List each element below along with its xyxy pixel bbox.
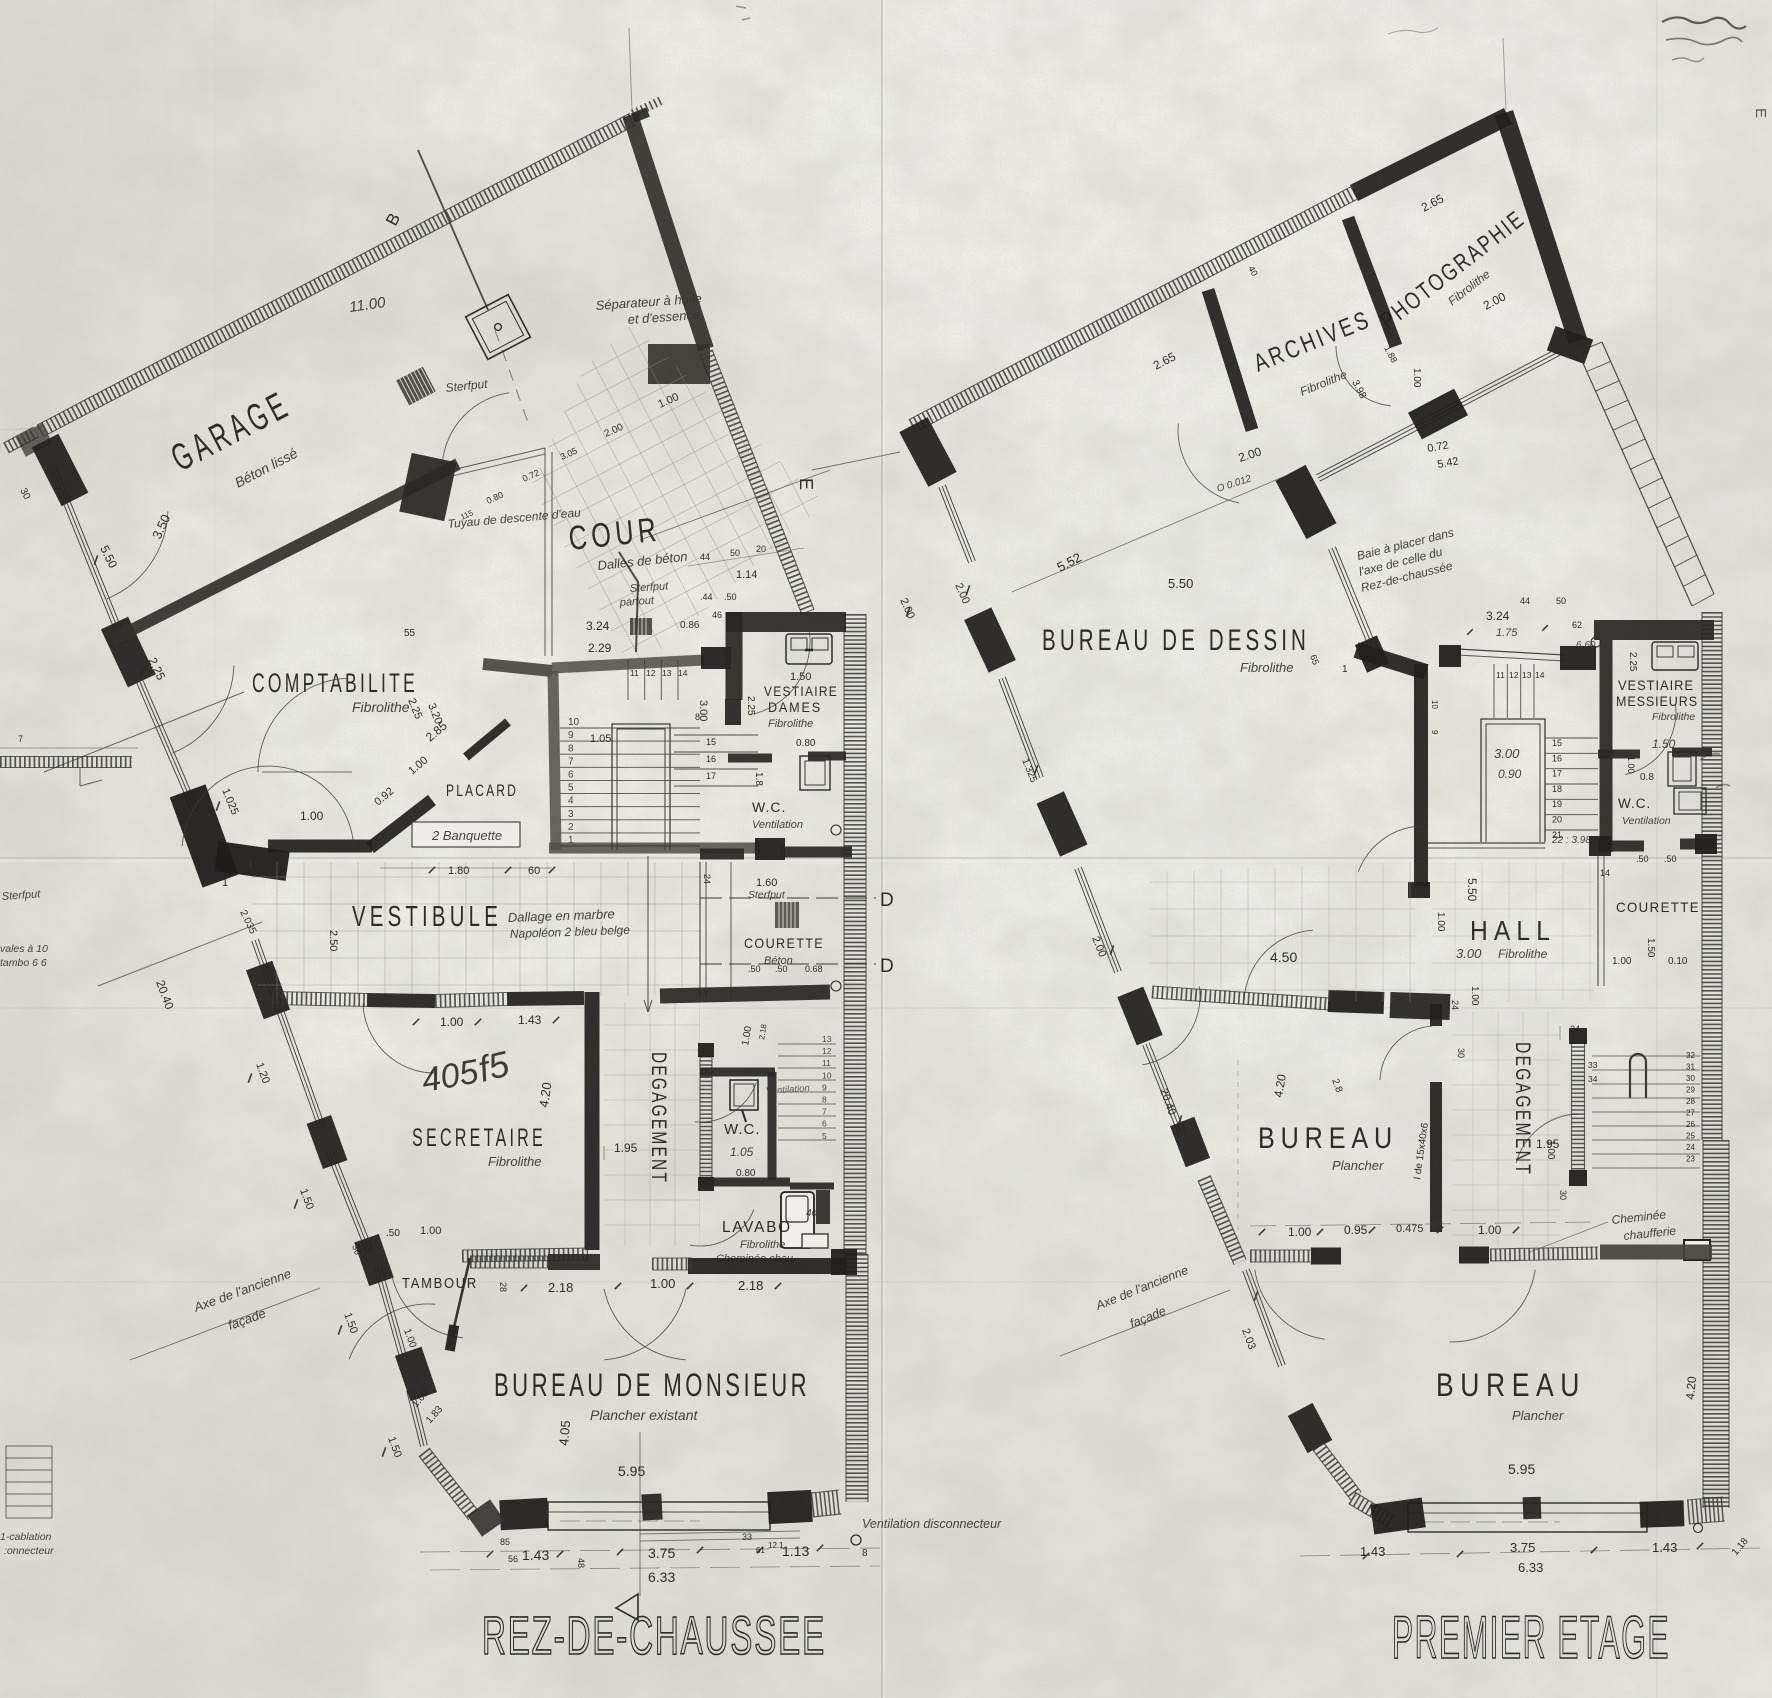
svg-text:6: 6: [568, 770, 574, 781]
svg-text:E: E: [796, 478, 816, 490]
svg-text:.50: .50: [724, 592, 737, 602]
svg-text:E: E: [1752, 108, 1769, 118]
svg-text:1.8: 1.8: [753, 772, 764, 786]
svg-text::onnecteur: :onnecteur: [4, 1545, 54, 1557]
svg-text:1.00: 1.00: [1545, 1140, 1556, 1160]
svg-text:VESTIBULE: VESTIBULE: [352, 901, 502, 933]
svg-text:D: D: [880, 890, 894, 911]
svg-text:Plancher existant: Plancher existant: [590, 1407, 699, 1423]
svg-text:2.25: 2.25: [745, 696, 756, 716]
svg-text:27: 27: [1686, 1109, 1695, 1118]
svg-text:2.18: 2.18: [548, 1280, 573, 1295]
svg-text:62: 62: [1572, 620, 1582, 630]
svg-text:3.00: 3.00: [1456, 946, 1482, 961]
svg-text:1.43: 1.43: [1360, 1544, 1385, 1559]
svg-text:26: 26: [1686, 1120, 1695, 1129]
svg-text:33: 33: [742, 1532, 752, 1542]
svg-text:14: 14: [678, 668, 688, 678]
svg-text:1.05: 1.05: [730, 1145, 754, 1159]
svg-text:2 Banquette: 2 Banquette: [431, 828, 502, 843]
svg-text:5.95: 5.95: [1508, 1461, 1535, 1477]
svg-text:0.475: 0.475: [1396, 1223, 1424, 1235]
svg-text:W.C.: W.C.: [724, 1121, 761, 1138]
svg-text:2.18: 2.18: [738, 1278, 763, 1293]
svg-text:BUREAU DE MONSIEUR: BUREAU DE MONSIEUR: [494, 1367, 810, 1403]
svg-text:50: 50: [1556, 596, 1566, 606]
svg-text:1.75: 1.75: [1496, 627, 1518, 639]
svg-text:1.14: 1.14: [736, 569, 757, 581]
svg-text:.50: .50: [1664, 854, 1677, 864]
svg-text:1.50: 1.50: [790, 671, 811, 683]
svg-text:16: 16: [1552, 753, 1562, 763]
svg-text:60: 60: [528, 865, 540, 877]
svg-text:Fibrolithe: Fibrolithe: [352, 699, 410, 715]
svg-text:COURETTE: COURETTE: [744, 935, 824, 951]
svg-text:8: 8: [822, 1095, 827, 1105]
svg-text:28: 28: [1686, 1097, 1695, 1106]
svg-text:20: 20: [1552, 815, 1562, 825]
svg-text:4o: 4o: [806, 1208, 818, 1219]
svg-text:HALL: HALL: [1470, 915, 1556, 946]
svg-text:4: 4: [568, 796, 574, 807]
svg-text:3.75: 3.75: [1510, 1540, 1535, 1555]
svg-text:1.00: 1.00: [440, 1015, 464, 1029]
svg-text:.50: .50: [775, 964, 788, 974]
svg-text:14: 14: [1535, 670, 1545, 680]
svg-text:8: 8: [568, 743, 574, 754]
svg-text:13: 13: [1522, 670, 1532, 680]
svg-text:DAMES: DAMES: [768, 699, 822, 715]
svg-text:3.00: 3.00: [1494, 746, 1520, 761]
svg-text:1: 1: [568, 835, 574, 846]
svg-text:44: 44: [700, 552, 710, 562]
svg-text:BUREAU DE DESSIN: BUREAU DE DESSIN: [1042, 624, 1310, 657]
svg-text:Fibrolithe: Fibrolithe: [740, 1239, 785, 1251]
svg-text:5: 5: [568, 783, 574, 794]
svg-text:BUREAU: BUREAU: [1436, 1367, 1586, 1403]
svg-text:W.C.: W.C.: [752, 799, 786, 815]
svg-text:24: 24: [702, 874, 712, 884]
svg-text:REZ-DE-CHAUSSEE: REZ-DE-CHAUSSEE: [482, 1606, 826, 1666]
svg-text:1.00: 1.00: [1411, 368, 1422, 388]
svg-text:22 : 3.98: 22 : 3.98: [1551, 835, 1591, 846]
svg-text:Fibrolithe: Fibrolithe: [1498, 947, 1548, 961]
svg-text:1.05: 1.05: [590, 733, 611, 745]
svg-text:.50: .50: [386, 1228, 400, 1239]
svg-text:12.1: 12.1: [768, 1541, 784, 1550]
svg-text:COURETTE: COURETTE: [1616, 899, 1700, 915]
svg-text:12: 12: [1509, 670, 1519, 680]
svg-text:Sterfput: Sterfput: [748, 889, 786, 901]
svg-text:.50: .50: [748, 964, 761, 974]
svg-text:1.00: 1.00: [300, 809, 324, 823]
svg-text:12: 12: [646, 668, 656, 678]
svg-text:20: 20: [756, 544, 766, 554]
svg-text:3.75: 3.75: [648, 1545, 675, 1561]
svg-text:23: 23: [1686, 1155, 1695, 1164]
svg-text:Plancher: Plancher: [1332, 1158, 1384, 1173]
svg-text:28: 28: [498, 1282, 508, 1292]
svg-text:2.29: 2.29: [588, 641, 612, 655]
svg-text:11: 11: [822, 1058, 831, 1068]
svg-text:3.24: 3.24: [1486, 609, 1510, 623]
svg-text:48: 48: [576, 1558, 586, 1568]
svg-text:0.80: 0.80: [796, 738, 816, 749]
svg-text:5.95: 5.95: [618, 1463, 645, 1479]
svg-text:1-cablation: 1-cablation: [0, 1531, 52, 1543]
svg-text:Fibrolithe: Fibrolithe: [1240, 660, 1293, 675]
svg-text:PLACARD: PLACARD: [446, 781, 518, 800]
svg-text:5.50: 5.50: [1465, 878, 1479, 902]
svg-text:Ventilation: Ventilation: [1622, 815, 1671, 827]
svg-text:17: 17: [1552, 769, 1562, 779]
svg-text:11: 11: [630, 668, 639, 678]
svg-text:17: 17: [706, 771, 716, 781]
svg-text:1.00: 1.00: [420, 1225, 441, 1237]
svg-text:PREMIER ETAGE: PREMIER ETAGE: [1392, 1604, 1670, 1671]
svg-text:56: 56: [508, 1554, 518, 1564]
svg-text:6.33: 6.33: [648, 1569, 675, 1585]
svg-text:29: 29: [1686, 1086, 1695, 1095]
svg-text:LAVABO: LAVABO: [722, 1219, 792, 1236]
svg-text:BUREAU: BUREAU: [1258, 1122, 1398, 1155]
svg-text:1.43: 1.43: [518, 1013, 542, 1027]
svg-text:1: 1: [1342, 664, 1348, 675]
svg-text:.50: .50: [1636, 854, 1649, 864]
svg-text:Fibrolithe: Fibrolithe: [488, 1154, 541, 1169]
svg-text:1.60: 1.60: [756, 877, 777, 889]
svg-text:15: 15: [706, 737, 716, 747]
svg-text:85: 85: [500, 1537, 510, 1547]
svg-text:D: D: [880, 956, 894, 977]
svg-text:4.05: 4.05: [556, 1420, 573, 1447]
svg-text:1.00: 1.00: [1435, 912, 1446, 932]
svg-text:8: 8: [695, 712, 700, 722]
svg-text:VESTIAIRE: VESTIAIRE: [1618, 678, 1694, 693]
svg-text:44: 44: [1520, 596, 1530, 606]
svg-text:10: 10: [1430, 700, 1439, 709]
svg-text:33: 33: [1588, 1060, 1598, 1070]
svg-text:9: 9: [822, 1082, 827, 1092]
svg-text:Fibrolithe: Fibrolithe: [1652, 711, 1695, 723]
svg-text:55: 55: [404, 628, 416, 639]
svg-text:12: 12: [822, 1046, 832, 1056]
svg-text:7: 7: [18, 734, 23, 744]
svg-text:DEGAGEMENT: DEGAGEMENT: [1511, 1042, 1534, 1176]
svg-text:2.50: 2.50: [327, 930, 339, 951]
svg-text:9: 9: [1430, 730, 1439, 735]
svg-text:1.00: 1.00: [1612, 956, 1632, 967]
svg-text:DEGAGEMENT: DEGAGEMENT: [647, 1052, 670, 1184]
svg-text:1.00: 1.00: [1626, 756, 1636, 774]
svg-text:2.25: 2.25: [1627, 652, 1638, 672]
svg-text:19: 19: [1552, 799, 1562, 809]
svg-text:VESTIAIRE: VESTIAIRE: [764, 683, 838, 699]
svg-text:11: 11: [1496, 670, 1505, 680]
svg-text:24: 24: [1686, 1143, 1695, 1152]
svg-text:0.10: 0.10: [1668, 956, 1688, 967]
svg-text:18: 18: [1552, 784, 1562, 794]
svg-text:5: 5: [822, 1131, 827, 1141]
svg-text:3: 3: [568, 809, 574, 820]
svg-text:16: 16: [706, 754, 716, 764]
svg-text:34: 34: [1588, 1074, 1598, 1084]
svg-text:15: 15: [1552, 738, 1562, 748]
svg-text:4.20: 4.20: [1683, 1375, 1699, 1400]
svg-text:30: 30: [1456, 1048, 1466, 1058]
svg-text:0.80: 0.80: [736, 1168, 756, 1179]
svg-text:0.86: 0.86: [680, 620, 700, 631]
svg-text:tambo 6 6: tambo 6 6: [0, 957, 47, 969]
svg-text:1.80: 1.80: [448, 865, 469, 877]
svg-text:1.43: 1.43: [1652, 1540, 1677, 1555]
svg-text:Ventilation disconnecteur: Ventilation disconnecteur: [862, 1517, 1002, 1531]
svg-text:0.90: 0.90: [1498, 767, 1522, 781]
svg-text:1.00: 1.00: [1469, 986, 1480, 1006]
svg-text:7: 7: [568, 756, 574, 767]
svg-text:46: 46: [712, 610, 722, 620]
svg-text:0.95: 0.95: [1344, 1223, 1368, 1237]
svg-text:1.00: 1.00: [1288, 1225, 1312, 1239]
svg-text:MESSIEURS: MESSIEURS: [1616, 694, 1698, 709]
svg-text:SECRETAIRE: SECRETAIRE: [412, 1124, 546, 1152]
svg-text:8: 8: [862, 1548, 868, 1559]
svg-text:1.95: 1.95: [614, 1141, 638, 1155]
svg-text:W.C.: W.C.: [1618, 796, 1651, 811]
svg-text:13: 13: [662, 668, 672, 678]
svg-text:0.68: 0.68: [805, 964, 823, 974]
svg-text:50: 50: [730, 548, 740, 558]
svg-text:32: 32: [1686, 1051, 1695, 1060]
svg-text:31: 31: [1686, 1063, 1695, 1072]
svg-text:24: 24: [1570, 1024, 1580, 1034]
svg-text:.44: .44: [700, 592, 713, 602]
svg-text:1.43: 1.43: [522, 1547, 549, 1563]
svg-text:COMPTABILITE: COMPTABILITE: [252, 668, 418, 698]
svg-text:30: 30: [1558, 1190, 1568, 1200]
svg-text:6.33: 6.33: [1518, 1560, 1543, 1575]
svg-text:1.00: 1.00: [650, 1276, 675, 1291]
svg-text:Ventilation: Ventilation: [752, 819, 803, 831]
svg-text:14: 14: [1600, 868, 1610, 878]
svg-text:Plancher: Plancher: [1512, 1408, 1564, 1423]
svg-text:0.8: 0.8: [1640, 772, 1654, 783]
svg-text:1: 1: [222, 877, 228, 889]
svg-text:13: 13: [822, 1034, 832, 1044]
svg-text:6: 6: [822, 1119, 827, 1129]
svg-text:3.24: 3.24: [586, 619, 610, 633]
svg-text:30: 30: [1686, 1074, 1695, 1083]
svg-text:9: 9: [568, 730, 574, 741]
svg-text:10: 10: [822, 1070, 832, 1080]
svg-text:7: 7: [822, 1107, 827, 1117]
svg-text:Fibrolithe: Fibrolithe: [768, 718, 813, 730]
svg-text:2: 2: [568, 822, 574, 833]
svg-text:10: 10: [568, 717, 580, 728]
svg-text:vales à 10: vales à 10: [0, 943, 48, 955]
svg-text:1.13: 1.13: [782, 1543, 809, 1559]
svg-text:1.50: 1.50: [1645, 938, 1656, 958]
svg-text:5.50: 5.50: [1168, 576, 1193, 591]
svg-text:25: 25: [1686, 1132, 1695, 1141]
